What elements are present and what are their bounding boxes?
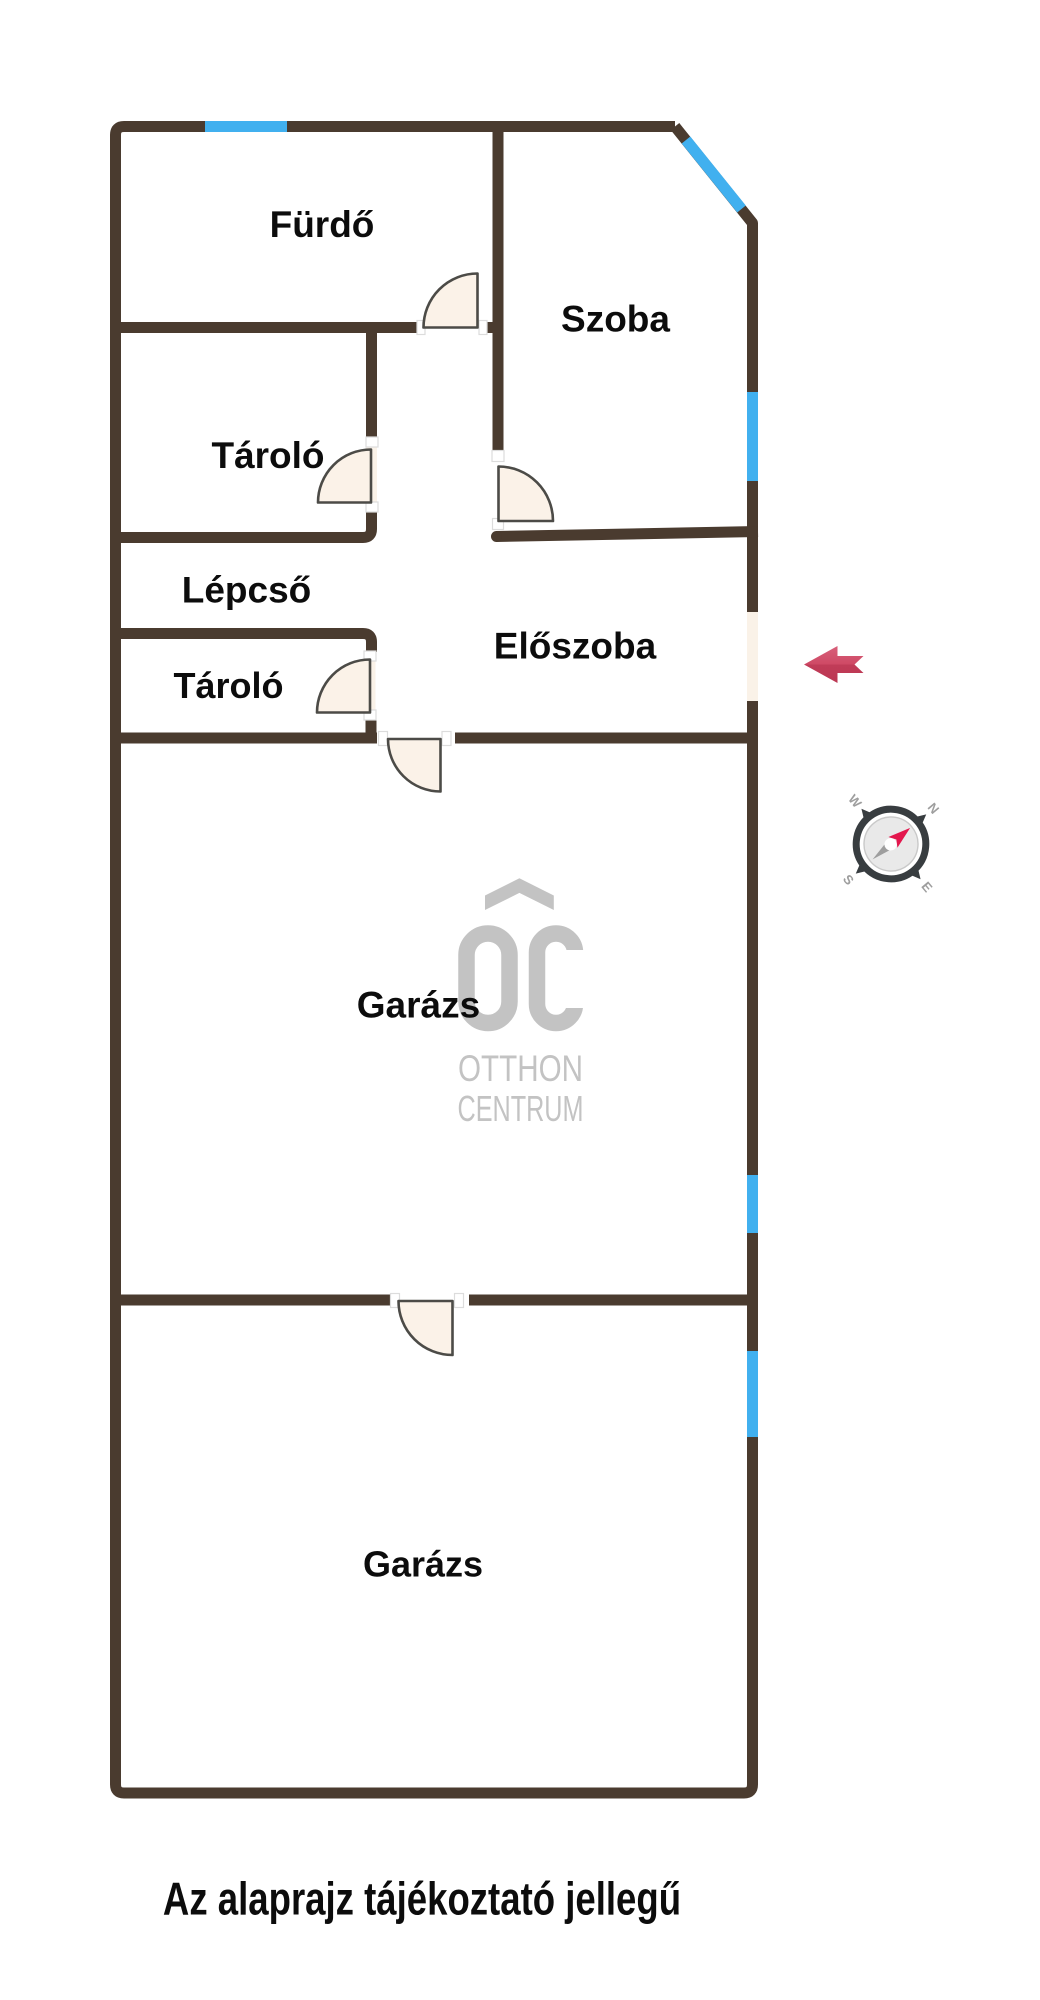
- svg-text:OTTHON: OTTHON: [458, 1048, 583, 1090]
- svg-text:Tároló: Tároló: [173, 665, 283, 706]
- svg-text:Garázs: Garázs: [363, 1544, 483, 1585]
- svg-text:Garázs: Garázs: [357, 985, 480, 1026]
- svg-text:Tároló: Tároló: [211, 435, 324, 476]
- svg-text:Fürdő: Fürdő: [270, 204, 375, 245]
- svg-text:CENTRUM: CENTRUM: [458, 1089, 584, 1130]
- svg-text:Előszoba: Előszoba: [494, 626, 657, 667]
- svg-text:Lépcső: Lépcső: [182, 570, 312, 611]
- svg-text:Szoba: Szoba: [561, 299, 670, 340]
- svg-text:Az alaprajz tájékoztató jelleg: Az alaprajz tájékoztató jellegű: [163, 1872, 681, 1924]
